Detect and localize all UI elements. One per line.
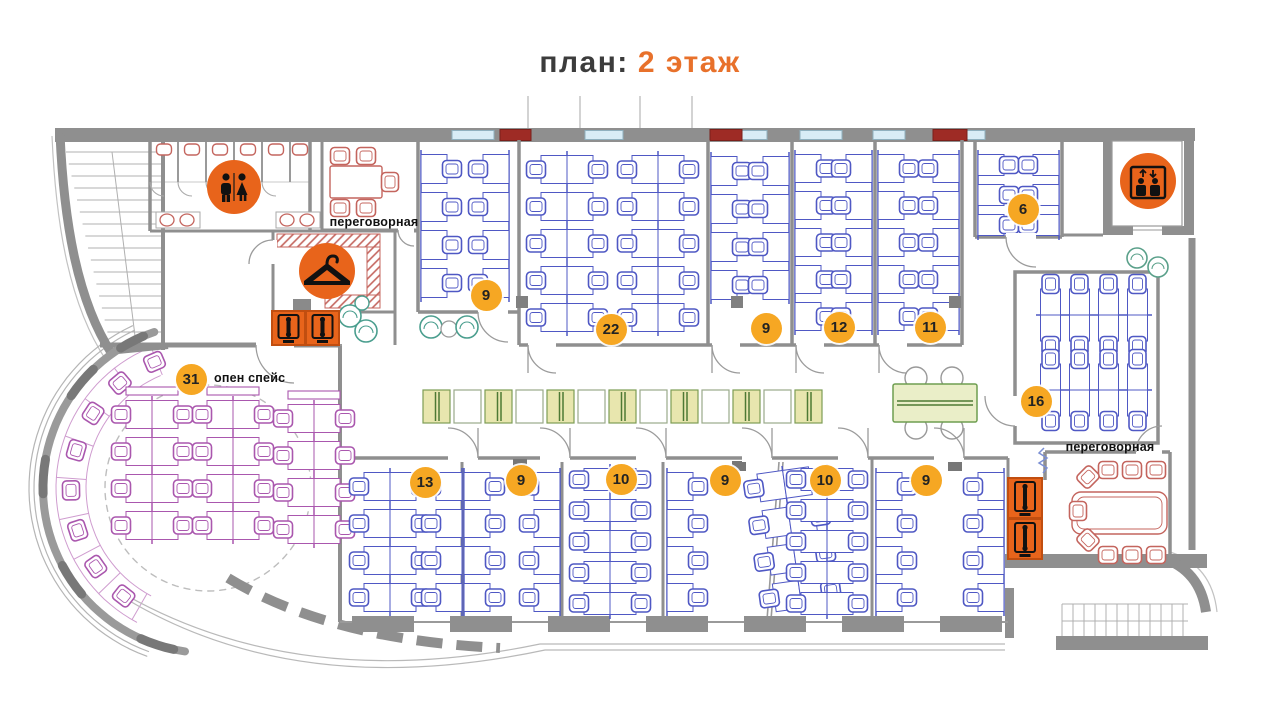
- room-badge-office-top-1: 9: [471, 280, 502, 311]
- room-badge-office-right: 16: [1021, 386, 1052, 417]
- room-badge-office-bot-5: 10: [810, 465, 841, 496]
- room-badge-office-top-3: 9: [751, 313, 782, 344]
- room-badge-office-bot-1: 13: [410, 467, 441, 498]
- room-badge-office-top-6: 6: [1008, 194, 1039, 225]
- room-badge-office-bot-3: 10: [606, 464, 637, 495]
- room-badge-office-top-2: 22: [596, 314, 627, 345]
- floor-plan-overlay: 3192291211616139109109переговорнаяопен с…: [0, 0, 1280, 719]
- room-badge-open-space: 31: [176, 364, 207, 395]
- room-badge-office-bot-2: 9: [506, 465, 537, 496]
- label-meeting-room-top: переговорная: [330, 215, 419, 229]
- room-badge-office-bot-4: 9: [710, 465, 741, 496]
- room-badge-office-bot-6: 9: [911, 465, 942, 496]
- room-badge-office-top-4: 12: [824, 312, 855, 343]
- label-open-space: опен спейс: [214, 371, 285, 385]
- room-badge-office-top-5: 11: [915, 312, 946, 343]
- floor-plan-page: план:2 этаж 3192291211616139109109перего…: [0, 0, 1280, 719]
- label-meeting-room-right: переговорная: [1066, 440, 1155, 454]
